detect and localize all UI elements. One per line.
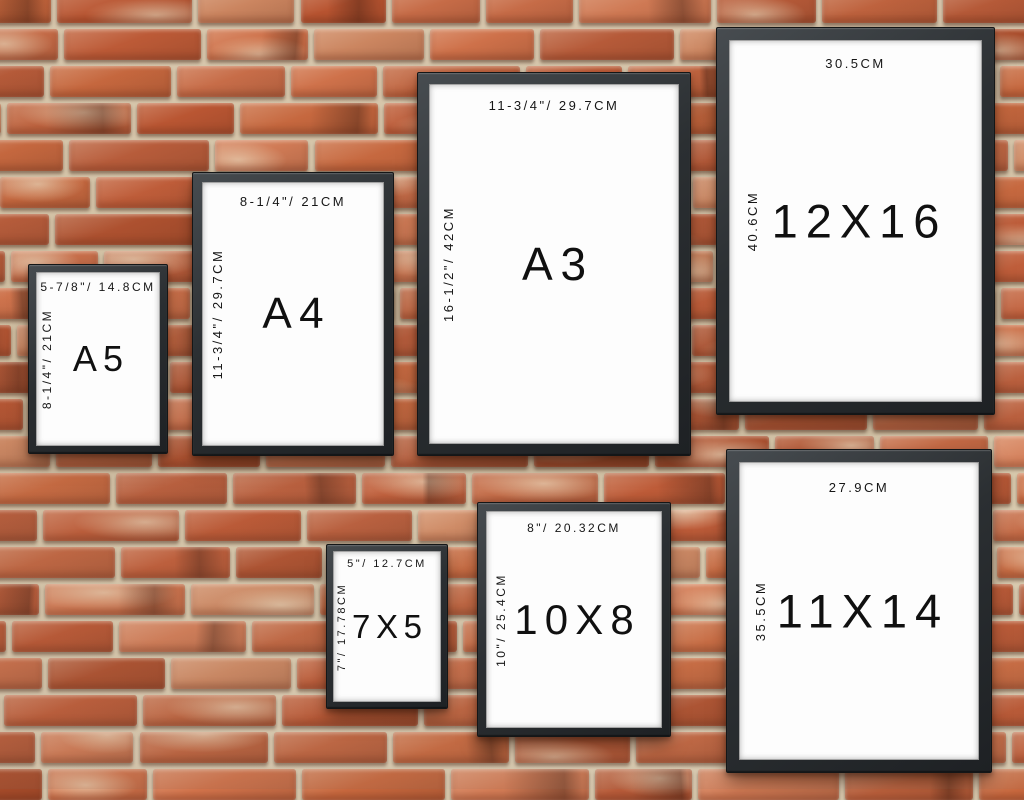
brick bbox=[698, 769, 839, 800]
frame-a3-width-label: 11-3/4"/ 29.7CM bbox=[429, 98, 679, 113]
brick bbox=[119, 621, 246, 652]
frame-7x5-size-label: 7X5 bbox=[346, 608, 427, 646]
brick bbox=[274, 732, 387, 763]
brick bbox=[392, 0, 481, 23]
brick bbox=[1001, 288, 1024, 319]
brick bbox=[137, 103, 234, 134]
brick bbox=[486, 0, 573, 23]
brick bbox=[0, 658, 42, 689]
brick bbox=[997, 547, 1024, 578]
brick bbox=[191, 584, 314, 615]
brick bbox=[236, 547, 322, 578]
brick bbox=[55, 214, 196, 245]
brick bbox=[185, 510, 301, 541]
frame-10x8-height-label: 10"/ 25.4CM bbox=[494, 573, 508, 667]
brick bbox=[240, 103, 378, 134]
brick bbox=[0, 473, 110, 504]
frame-a3-height-label: 16-1/2"/ 42CM bbox=[441, 206, 456, 322]
brick bbox=[215, 140, 309, 171]
brick bbox=[121, 547, 230, 578]
frame-11x14-size-label: 11X14 bbox=[769, 584, 949, 639]
frame-a4: 8-1/4"/ 21CM 11-3/4"/ 29.7CM A4 bbox=[192, 172, 394, 456]
brick bbox=[0, 66, 44, 97]
brick bbox=[198, 0, 294, 23]
brick bbox=[430, 29, 534, 60]
frame-12x16-height-label: 40.6CM bbox=[745, 191, 760, 252]
brick bbox=[69, 140, 208, 171]
frame-a4-height-label: 11-3/4"/ 29.7CM bbox=[210, 249, 225, 380]
brick bbox=[845, 769, 973, 800]
frame-12x16-paper: 30.5CM 40.6CM 12X16 bbox=[729, 40, 982, 402]
frame-a5-paper: 5-7/8"/ 14.8CM 8-1/4"/ 21CM A5 bbox=[36, 272, 160, 446]
brick bbox=[307, 510, 412, 541]
brick bbox=[1000, 66, 1024, 97]
brick bbox=[1017, 473, 1024, 504]
brick bbox=[0, 399, 23, 430]
brick bbox=[451, 769, 589, 800]
brick bbox=[1014, 140, 1024, 171]
brick bbox=[41, 732, 134, 763]
brick bbox=[993, 510, 1024, 541]
brick bbox=[579, 0, 711, 23]
brick bbox=[0, 325, 11, 356]
brick bbox=[540, 29, 674, 60]
frame-10x8: 8"/ 20.32CM 10"/ 25.4CM 10X8 bbox=[477, 502, 671, 737]
brick bbox=[0, 214, 49, 245]
frame-7x5: 5"/ 12.7CM 7"/ 17.78CM 7X5 bbox=[326, 544, 448, 709]
brick bbox=[7, 103, 131, 134]
brick bbox=[1019, 584, 1024, 615]
brick bbox=[0, 251, 5, 282]
brick bbox=[0, 29, 58, 60]
brick bbox=[291, 66, 377, 97]
brick bbox=[48, 769, 147, 800]
brick bbox=[143, 695, 276, 726]
brick bbox=[177, 66, 285, 97]
frame-7x5-width-label: 5"/ 12.7CM bbox=[333, 558, 441, 570]
brick bbox=[64, 29, 201, 60]
brick bbox=[604, 473, 725, 504]
frame-11x14: 27.9CM 35.5CM 11X14 bbox=[726, 449, 992, 773]
frame-12x16-width-label: 30.5CM bbox=[729, 56, 982, 71]
frame-a4-size-label: A4 bbox=[255, 289, 331, 339]
brick bbox=[943, 0, 1024, 23]
frame-11x14-width-label: 27.9CM bbox=[739, 480, 979, 495]
brick bbox=[0, 621, 6, 652]
brick bbox=[57, 0, 192, 23]
frame-10x8-paper: 8"/ 20.32CM 10"/ 25.4CM 10X8 bbox=[486, 511, 662, 728]
brick bbox=[717, 0, 816, 23]
brick bbox=[12, 621, 113, 652]
brick bbox=[43, 510, 179, 541]
brick bbox=[48, 658, 166, 689]
frame-a5: 5-7/8"/ 14.8CM 8-1/4"/ 21CM A5 bbox=[28, 264, 168, 454]
brick bbox=[0, 584, 39, 615]
frame-a5-width-label: 5-7/8"/ 14.8CM bbox=[36, 280, 160, 294]
brick bbox=[595, 769, 692, 800]
brick bbox=[302, 769, 445, 800]
frame-a4-width-label: 8-1/4"/ 21CM bbox=[202, 194, 384, 209]
brick bbox=[116, 473, 227, 504]
frame-a5-size-label: A5 bbox=[67, 338, 129, 380]
brick bbox=[4, 695, 137, 726]
frame-7x5-paper: 5"/ 12.7CM 7"/ 17.78CM 7X5 bbox=[333, 551, 441, 702]
brick bbox=[0, 0, 51, 23]
frame-11x14-paper: 27.9CM 35.5CM 11X14 bbox=[739, 462, 979, 760]
brick bbox=[979, 769, 1024, 800]
brick bbox=[362, 473, 466, 504]
frame-a3: 11-3/4"/ 29.7CM 16-1/2"/ 42CM A3 bbox=[417, 72, 691, 456]
brick bbox=[0, 103, 1, 134]
frame-a3-paper: 11-3/4"/ 29.7CM 16-1/2"/ 42CM A3 bbox=[429, 84, 679, 444]
frame-a5-height-label: 8-1/4"/ 21CM bbox=[40, 309, 54, 409]
brick bbox=[0, 547, 115, 578]
frame-10x8-size-label: 10X8 bbox=[507, 596, 641, 644]
brick bbox=[207, 29, 308, 60]
brick bbox=[45, 584, 185, 615]
frame-11x14-height-label: 35.5CM bbox=[753, 581, 768, 642]
frame-10x8-width-label: 8"/ 20.32CM bbox=[486, 521, 662, 535]
brick bbox=[0, 769, 42, 800]
brick bbox=[0, 510, 37, 541]
brick bbox=[822, 0, 937, 23]
brick bbox=[233, 473, 356, 504]
brick bbox=[472, 473, 598, 504]
frame-a3-size-label: A3 bbox=[514, 237, 594, 291]
brick bbox=[0, 732, 35, 763]
brick bbox=[153, 769, 296, 800]
brick bbox=[140, 732, 269, 763]
brick bbox=[994, 436, 1024, 467]
brick bbox=[1012, 732, 1024, 763]
brick bbox=[301, 0, 386, 23]
brick bbox=[171, 658, 291, 689]
brick bbox=[0, 177, 90, 208]
frame-a4-paper: 8-1/4"/ 21CM 11-3/4"/ 29.7CM A4 bbox=[202, 182, 384, 446]
frame-12x16-size-label: 12X16 bbox=[764, 194, 948, 249]
brick bbox=[50, 66, 172, 97]
brick bbox=[314, 29, 424, 60]
frame-12x16: 30.5CM 40.6CM 12X16 bbox=[716, 27, 995, 415]
brick bbox=[0, 140, 63, 171]
